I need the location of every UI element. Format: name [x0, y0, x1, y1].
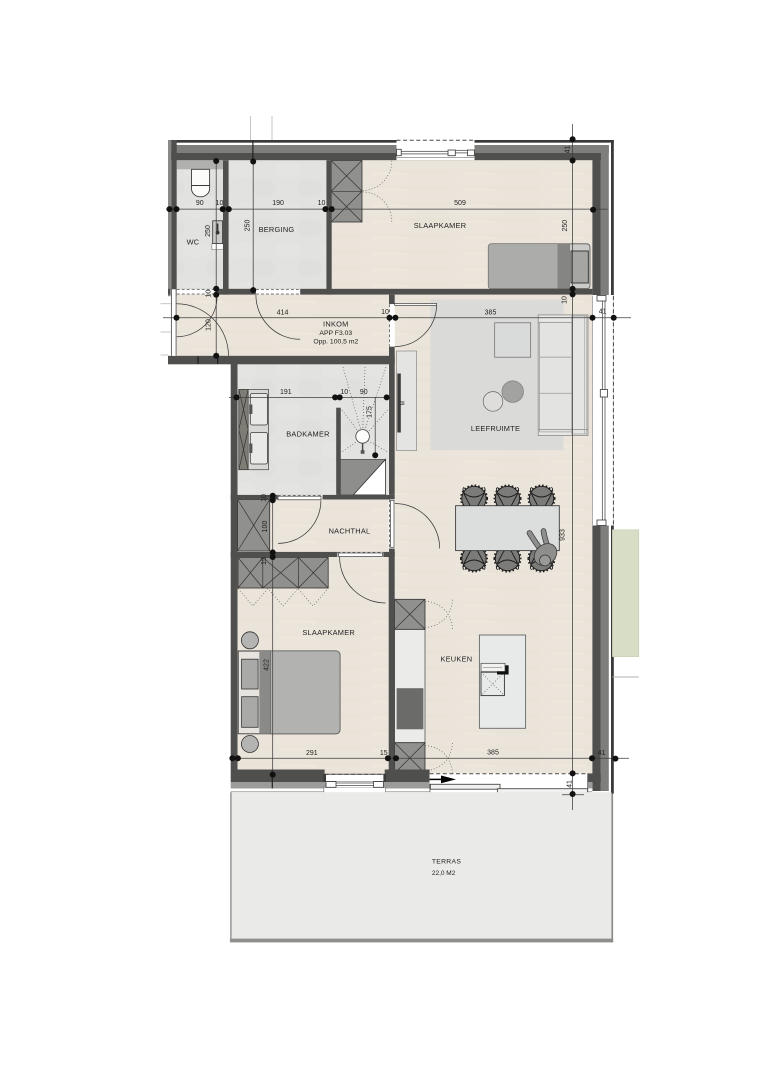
svg-text:BADKAMER: BADKAMER — [286, 430, 329, 439]
svg-text:190: 190 — [272, 200, 284, 207]
svg-text:385: 385 — [485, 310, 497, 317]
svg-text:LEEFRUIMTE: LEEFRUIMTE — [471, 424, 520, 433]
svg-text:41: 41 — [599, 309, 607, 316]
svg-text:KEUKEN: KEUKEN — [440, 655, 472, 664]
svg-text:933: 933 — [560, 529, 567, 541]
svg-text:250: 250 — [562, 220, 569, 232]
svg-text:10: 10 — [206, 290, 213, 298]
svg-text:191: 191 — [280, 389, 292, 396]
svg-text:TERRAS: TERRAS — [432, 859, 462, 866]
svg-text:10: 10 — [381, 309, 389, 316]
svg-text:291: 291 — [306, 750, 318, 757]
svg-text:120: 120 — [206, 319, 213, 331]
svg-text:SLAAPKAMER: SLAAPKAMER — [414, 221, 467, 230]
svg-text:41: 41 — [598, 750, 606, 757]
svg-text:10: 10 — [562, 296, 569, 304]
svg-text:22,0 M2: 22,0 M2 — [432, 870, 456, 877]
svg-text:M: M — [401, 401, 407, 405]
svg-text:41: 41 — [567, 780, 574, 788]
svg-text:NACHTHAL: NACHTHAL — [329, 527, 371, 536]
svg-text:385: 385 — [487, 749, 499, 756]
svg-text:APP F3.03: APP F3.03 — [319, 330, 352, 337]
svg-text:175: 175 — [367, 406, 374, 418]
svg-text:250: 250 — [205, 225, 212, 237]
svg-text:15: 15 — [380, 750, 388, 757]
svg-text:INKOM: INKOM — [323, 320, 348, 329]
svg-text:10: 10 — [340, 389, 348, 396]
svg-text:10: 10 — [261, 494, 268, 502]
svg-text:509: 509 — [454, 200, 466, 207]
svg-text:WC: WC — [187, 238, 200, 247]
svg-text:250: 250 — [244, 220, 251, 232]
svg-text:90: 90 — [196, 200, 204, 207]
svg-text:15: 15 — [261, 557, 268, 565]
svg-text:422: 422 — [264, 659, 271, 671]
svg-text:BERGING: BERGING — [259, 225, 295, 234]
svg-text:SLAAPKAMER: SLAAPKAMER — [302, 628, 355, 637]
svg-text:10: 10 — [318, 200, 326, 207]
svg-text:41: 41 — [565, 146, 572, 154]
svg-text:10: 10 — [216, 200, 224, 207]
svg-text:90: 90 — [360, 389, 368, 396]
svg-text:414: 414 — [277, 310, 289, 317]
svg-text:Opp. 100,5 m2: Opp. 100,5 m2 — [313, 339, 358, 346]
svg-text:100: 100 — [262, 521, 269, 533]
